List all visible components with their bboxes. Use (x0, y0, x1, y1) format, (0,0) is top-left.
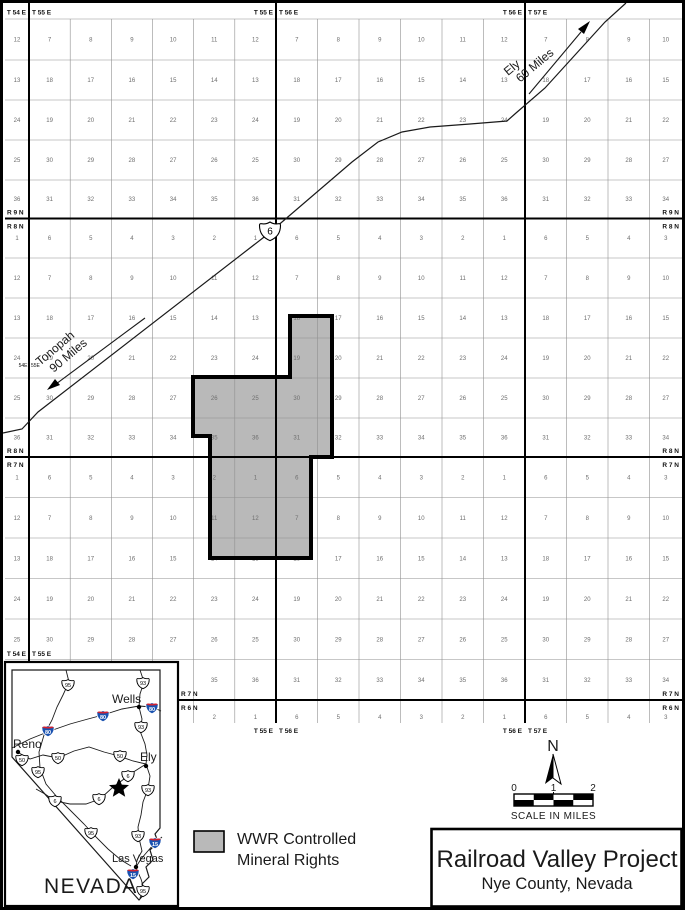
section-number: 36 (252, 436, 259, 442)
section-number: 28 (129, 637, 136, 643)
township-range-label: T 55 E (32, 10, 52, 17)
section-number: 23 (459, 597, 466, 603)
section-number: 12 (252, 516, 259, 522)
section-number: 16 (129, 78, 136, 84)
section-number: 19 (542, 356, 549, 362)
section-number: 34 (662, 678, 669, 684)
section-number: 24 (501, 597, 508, 603)
section-number: 35 (211, 436, 218, 442)
section-number: 33 (129, 436, 136, 442)
section-number: 29 (335, 158, 342, 164)
section-number: 21 (376, 356, 383, 362)
section-number: 32 (335, 678, 342, 684)
section-number: 24 (501, 356, 508, 362)
section-number: 17 (87, 316, 94, 322)
township-range-label: R 8 N (662, 448, 679, 455)
township-range-label: R 9 N (7, 210, 24, 217)
section-number: 19 (46, 118, 53, 124)
section-number: 28 (376, 158, 383, 164)
svg-text:6: 6 (97, 797, 100, 803)
section-number: 33 (376, 197, 383, 203)
svg-text:93: 93 (138, 725, 144, 731)
svg-text:93: 93 (140, 681, 146, 687)
section-number: 26 (211, 158, 218, 164)
section-number: 33 (376, 678, 383, 684)
nevada-state-label: NEVADA (44, 875, 138, 898)
section-number: 24 (252, 118, 259, 124)
section-number: 23 (211, 597, 218, 603)
section-number: 26 (211, 637, 218, 643)
section-number: 33 (129, 197, 136, 203)
section-number: 17 (335, 78, 342, 84)
section-number: 25 (501, 637, 508, 643)
section-number: 28 (625, 637, 632, 643)
section-number: 20 (87, 118, 94, 124)
section-number: 27 (418, 637, 425, 643)
section-number: 27 (662, 158, 669, 164)
section-number: 15 (662, 316, 669, 322)
section-number: 22 (170, 118, 177, 124)
section-number: 34 (170, 197, 177, 203)
section-number: 33 (625, 197, 632, 203)
svg-text:95: 95 (88, 831, 94, 837)
section-number: 19 (293, 597, 300, 603)
section-number: 12 (252, 38, 259, 44)
section-number: 10 (170, 38, 177, 44)
section-number: 20 (87, 597, 94, 603)
section-number: 22 (418, 356, 425, 362)
section-number: 22 (662, 118, 669, 124)
section-number: 11 (460, 516, 467, 522)
township-range-label: R 7 N (662, 691, 679, 698)
svg-text:50: 50 (55, 756, 61, 762)
section-number: 16 (376, 556, 383, 562)
section-number: 30 (542, 396, 549, 402)
township-range-label: R 7 N (7, 462, 24, 469)
section-number: 21 (376, 118, 383, 124)
section-number: 19 (293, 356, 300, 362)
section-number: 22 (662, 597, 669, 603)
section-number: 17 (335, 556, 342, 562)
section-number: 13 (252, 316, 259, 322)
section-number: 10 (170, 276, 177, 282)
section-number: 15 (662, 78, 669, 84)
section-number: 15 (170, 78, 177, 84)
railroad-valley-map: 1278910111278910111278910131817161514131… (0, 0, 685, 910)
section-number: 16 (129, 556, 136, 562)
section-number: 27 (662, 396, 669, 402)
section-number: 13 (501, 556, 508, 562)
svg-text:80: 80 (149, 707, 155, 713)
township-range-label: T 56 E (503, 728, 523, 735)
section-number: 21 (376, 597, 383, 603)
section-number: 36 (14, 436, 21, 442)
section-number: 30 (46, 637, 53, 643)
scale-tick-2: 2 (590, 783, 596, 794)
section-number: 25 (14, 158, 21, 164)
township-range-label: T 56 E (279, 728, 299, 735)
section-number: 10 (662, 38, 669, 44)
section-number: 15 (418, 78, 425, 84)
svg-text:95: 95 (65, 683, 71, 689)
scale-tick-0: 0 (511, 783, 517, 794)
section-number: 29 (87, 396, 94, 402)
township-range-label: R 7 N (662, 462, 679, 469)
section-number: 12 (14, 516, 21, 522)
section-number: 32 (87, 197, 94, 203)
township-range-label: T 54 E (7, 10, 27, 17)
section-number: 22 (170, 597, 177, 603)
svg-text:50: 50 (117, 754, 123, 760)
township-range-label: T 55 E (32, 651, 52, 658)
section-number: 36 (501, 678, 508, 684)
ely-dot (144, 764, 148, 768)
north-label: N (547, 738, 559, 755)
section-number: 11 (211, 38, 218, 44)
section-number: 21 (625, 356, 632, 362)
section-number: 13 (14, 316, 21, 322)
section-number: 14 (211, 78, 218, 84)
section-number: 25 (501, 158, 508, 164)
section-number: 33 (625, 436, 632, 442)
section-number: 16 (129, 316, 136, 322)
section-number: 29 (87, 158, 94, 164)
section-number: 29 (584, 396, 591, 402)
township-range-label: T 54 E (7, 651, 27, 658)
scale-seg (534, 794, 554, 800)
section-number: 18 (542, 316, 549, 322)
section-number: 25 (252, 396, 259, 402)
section-number: 28 (625, 158, 632, 164)
section-number: 18 (46, 316, 53, 322)
township-range-label: R 6 N (181, 705, 198, 712)
svg-text:80: 80 (100, 715, 106, 721)
section-number: 10 (418, 38, 425, 44)
section-number: 12 (501, 276, 508, 282)
section-number: 17 (584, 316, 591, 322)
section-number: 36 (252, 678, 259, 684)
svg-text:50: 50 (19, 758, 25, 764)
section-number: 12 (14, 276, 21, 282)
section-number: 36 (501, 197, 508, 203)
section-number: 33 (625, 678, 632, 684)
section-number: 25 (252, 158, 259, 164)
section-number: 36 (252, 197, 259, 203)
township-range-label: T 56 E (503, 10, 523, 17)
section-number: 26 (459, 396, 466, 402)
section-number: 15 (418, 556, 425, 562)
section-number: 18 (46, 556, 53, 562)
section-number: 32 (335, 197, 342, 203)
scale-caption: SCALE IN MILES (511, 811, 596, 822)
svg-text:15: 15 (152, 842, 158, 848)
section-number: 36 (14, 197, 21, 203)
section-number: 17 (87, 78, 94, 84)
section-number: 33 (376, 436, 383, 442)
township-range-label: 55E (31, 363, 41, 369)
section-number: 25 (501, 396, 508, 402)
section-number: 20 (584, 356, 591, 362)
section-number: 29 (584, 158, 591, 164)
scale-seg (573, 794, 593, 800)
section-number: 13 (14, 556, 21, 562)
section-number: 19 (46, 597, 53, 603)
legend-line1: WWR Controlled (237, 831, 356, 848)
section-number: 26 (211, 396, 218, 402)
svg-text:6: 6 (126, 774, 129, 780)
section-number: 35 (459, 197, 466, 203)
section-number: 34 (662, 436, 669, 442)
section-number: 14 (459, 78, 466, 84)
scale-seg (554, 800, 574, 806)
section-number: 21 (129, 597, 136, 603)
section-number: 31 (293, 436, 300, 442)
map-page: 1278910111278910111278910131817161514131… (0, 0, 685, 910)
section-number: 32 (584, 678, 591, 684)
section-number: 22 (418, 597, 425, 603)
section-number: 15 (170, 316, 177, 322)
section-number: 20 (335, 356, 342, 362)
section-number: 30 (293, 396, 300, 402)
section-number: 26 (459, 637, 466, 643)
section-number: 25 (14, 396, 21, 402)
section-number: 10 (170, 516, 177, 522)
section-number: 20 (335, 597, 342, 603)
section-number: 20 (87, 356, 94, 362)
section-number: 11 (460, 276, 467, 282)
section-number: 24 (14, 356, 21, 362)
us6-shield-number: 6 (267, 227, 273, 238)
township-range-label: R 8 N (662, 224, 679, 231)
section-number: 12 (252, 276, 259, 282)
las-vegas-label: Las Vegas (112, 853, 164, 865)
section-number: 15 (662, 556, 669, 562)
svg-text:95: 95 (35, 770, 41, 776)
section-number: 28 (625, 396, 632, 402)
reno-label: Reno (13, 737, 42, 751)
section-number: 30 (293, 637, 300, 643)
svg-text:95: 95 (140, 889, 146, 895)
section-number: 25 (252, 637, 259, 643)
section-number: 27 (662, 637, 669, 643)
svg-text:93: 93 (135, 834, 141, 840)
section-number: 26 (459, 158, 466, 164)
section-number: 17 (87, 556, 94, 562)
section-number: 31 (293, 197, 300, 203)
section-number: 35 (211, 678, 218, 684)
section-number: 16 (625, 556, 632, 562)
township-range-label: R 8 N (7, 224, 24, 231)
township-range-label: R 9 N (662, 210, 679, 217)
township-range-label: R 6 N (662, 705, 679, 712)
section-number: 34 (418, 436, 425, 442)
section-number: 11 (460, 38, 467, 44)
section-number: 28 (129, 158, 136, 164)
section-number: 19 (542, 118, 549, 124)
section-number: 32 (87, 436, 94, 442)
section-number: 27 (418, 396, 425, 402)
section-number: 35 (459, 436, 466, 442)
section-number: 10 (662, 276, 669, 282)
section-number: 16 (376, 78, 383, 84)
section-number: 29 (584, 637, 591, 643)
section-number: 35 (459, 678, 466, 684)
svg-text:93: 93 (145, 788, 151, 794)
section-number: 16 (625, 78, 632, 84)
section-number: 31 (46, 436, 53, 442)
section-number: 10 (418, 276, 425, 282)
section-number: 14 (459, 316, 466, 322)
section-number: 32 (335, 436, 342, 442)
section-number: 34 (662, 197, 669, 203)
township-range-label: T 56 E (279, 10, 299, 17)
section-number: 13 (501, 316, 508, 322)
section-number: 14 (459, 556, 466, 562)
section-number: 27 (170, 158, 177, 164)
township-range-label: T 55 E (254, 728, 274, 735)
section-number: 30 (542, 158, 549, 164)
township-range-label: T 55 E (254, 10, 274, 17)
section-number: 17 (335, 316, 342, 322)
section-number: 23 (459, 356, 466, 362)
section-number: 11 (211, 516, 218, 522)
section-number: 12 (501, 38, 508, 44)
section-number: 24 (14, 118, 21, 124)
section-number: 21 (625, 597, 632, 603)
section-number: 28 (376, 396, 383, 402)
section-number: 30 (293, 158, 300, 164)
section-number: 34 (170, 436, 177, 442)
section-number: 36 (501, 436, 508, 442)
section-number: 24 (14, 597, 21, 603)
section-number: 31 (46, 197, 53, 203)
section-number: 13 (14, 78, 21, 84)
svg-text:6: 6 (53, 799, 56, 805)
scale-seg (514, 800, 534, 806)
township-range-label: T 57 E (528, 728, 548, 735)
section-number: 32 (584, 436, 591, 442)
section-number: 14 (211, 316, 218, 322)
township-range-label: R 7 N (181, 691, 198, 698)
section-number: 28 (376, 637, 383, 643)
section-number: 22 (662, 356, 669, 362)
township-range-label: T 57 E (528, 10, 548, 17)
las-vegas-dot (134, 865, 138, 869)
section-number: 17 (584, 556, 591, 562)
section-number: 20 (584, 118, 591, 124)
section-number: 18 (542, 78, 549, 84)
section-number: 12 (501, 516, 508, 522)
township-range-label: R 8 N (7, 448, 24, 455)
svg-text:80: 80 (45, 730, 51, 736)
section-number: 19 (293, 118, 300, 124)
section-number: 32 (584, 197, 591, 203)
section-number: 27 (170, 396, 177, 402)
section-number: 16 (376, 316, 383, 322)
section-number: 23 (211, 356, 218, 362)
section-number: 19 (542, 597, 549, 603)
section-number: 23 (211, 118, 218, 124)
section-number: 24 (252, 356, 259, 362)
section-number: 35 (211, 197, 218, 203)
project-title: Railroad Valley Project (437, 846, 678, 873)
section-number: 12 (14, 38, 21, 44)
nevada-inset: 95938080809350505095693669593151595 Reno… (5, 662, 178, 906)
section-number: 34 (418, 197, 425, 203)
legend-swatch (194, 831, 224, 852)
section-number: 16 (625, 316, 632, 322)
section-number: 15 (418, 316, 425, 322)
legend-line2: Mineral Rights (237, 852, 339, 869)
wells-label: Wells (112, 692, 141, 706)
section-number: 21 (625, 118, 632, 124)
section-number: 15 (170, 556, 177, 562)
section-number: 27 (418, 158, 425, 164)
section-number: 34 (418, 678, 425, 684)
section-number: 18 (293, 78, 300, 84)
section-number: 20 (584, 597, 591, 603)
section-number: 22 (170, 356, 177, 362)
section-number: 25 (14, 637, 21, 643)
section-number: 21 (129, 356, 136, 362)
section-number: 18 (542, 556, 549, 562)
section-number: 31 (542, 197, 549, 203)
section-number: 30 (46, 158, 53, 164)
ely-inset-label: Ely (140, 750, 157, 764)
section-number: 13 (501, 78, 508, 84)
section-number: 18 (46, 78, 53, 84)
section-number: 27 (170, 637, 177, 643)
section-number: 29 (335, 637, 342, 643)
section-number: 23 (459, 118, 466, 124)
section-number: 13 (252, 78, 259, 84)
section-number: 10 (418, 516, 425, 522)
section-number: 30 (542, 637, 549, 643)
section-number: 21 (129, 118, 136, 124)
section-number: 29 (335, 396, 342, 402)
section-number: 31 (293, 678, 300, 684)
section-number: 31 (542, 436, 549, 442)
section-number: 24 (252, 597, 259, 603)
section-number: 10 (662, 516, 669, 522)
section-number: 29 (87, 637, 94, 643)
township-range-label: 54E (19, 363, 29, 369)
section-number: 17 (584, 78, 591, 84)
section-number: 22 (418, 118, 425, 124)
section-number: 31 (542, 678, 549, 684)
section-number: 20 (335, 118, 342, 124)
title-box: Railroad Valley Project Nye County, Neva… (432, 829, 682, 907)
project-subtitle: Nye County, Nevada (481, 875, 633, 893)
section-number: 28 (129, 396, 136, 402)
